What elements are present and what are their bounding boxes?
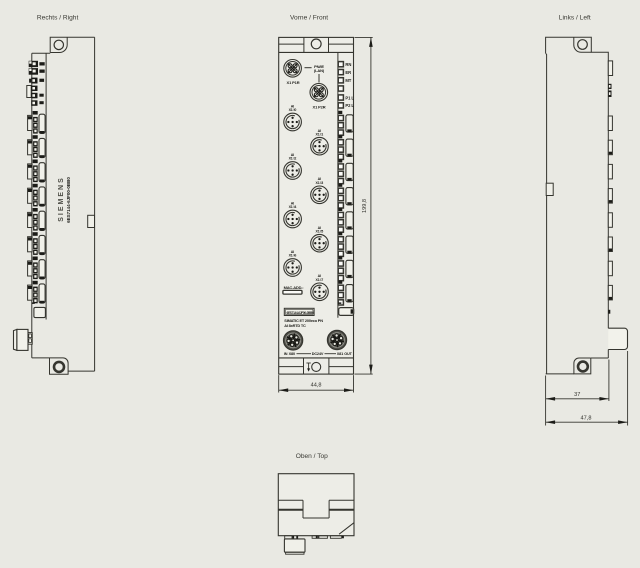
svg-text:X1 I3: X1 I3 xyxy=(315,181,323,185)
svg-text:MT: MT xyxy=(345,78,351,83)
svg-text:RN: RN xyxy=(345,62,351,67)
svg-text:ER: ER xyxy=(345,70,351,75)
svg-text:6ES7144-6JF00-0BB0: 6ES7144-6JF00-0BB0 xyxy=(287,311,315,315)
svg-text:X1 I6: X1 I6 xyxy=(289,254,297,258)
svg-text:44,8: 44,8 xyxy=(311,382,322,388)
svg-text:MAC-ADD.:: MAC-ADD.: xyxy=(284,285,304,290)
svg-text:SIEMENS: SIEMENS xyxy=(58,176,65,222)
svg-text:X81: X81 xyxy=(337,352,343,356)
svg-text:X1 I2: X1 I2 xyxy=(289,157,297,161)
svg-text:X1 I5: X1 I5 xyxy=(315,229,323,233)
svg-text:P2 L: P2 L xyxy=(345,103,354,108)
svg-text:P1 L: P1 L xyxy=(345,95,354,100)
svg-text:OUT: OUT xyxy=(344,352,352,356)
svg-text:IN: IN xyxy=(284,352,288,356)
svg-text:X1 I1: X1 I1 xyxy=(315,132,323,136)
svg-text:Rechts / Right: Rechts / Right xyxy=(37,14,79,21)
svg-text:Vorne / Front: Vorne / Front xyxy=(290,14,328,21)
svg-text:X1 I7: X1 I7 xyxy=(315,278,323,282)
svg-text:X80: X80 xyxy=(289,352,295,356)
svg-text:6ES7144-6JF00-0BB0: 6ES7144-6JF00-0BB0 xyxy=(66,177,71,223)
svg-text:X1 P2R: X1 P2R xyxy=(313,104,326,109)
svg-text:47,8: 47,8 xyxy=(581,415,592,421)
svg-text:(LAN): (LAN) xyxy=(314,68,325,73)
svg-text:X1 P1R: X1 P1R xyxy=(287,80,300,85)
svg-text:DC24V: DC24V xyxy=(312,352,324,356)
svg-text:X1 I4: X1 I4 xyxy=(289,205,297,209)
svg-text:37: 37 xyxy=(574,392,580,398)
svg-text:199,8: 199,8 xyxy=(362,199,368,213)
svg-text:Links / Left: Links / Left xyxy=(559,14,591,21)
svg-text:X1 I0: X1 I0 xyxy=(289,108,297,112)
svg-text:Oben / Top: Oben / Top xyxy=(296,453,328,460)
svg-text:AI 8xRTD TC: AI 8xRTD TC xyxy=(284,323,306,328)
